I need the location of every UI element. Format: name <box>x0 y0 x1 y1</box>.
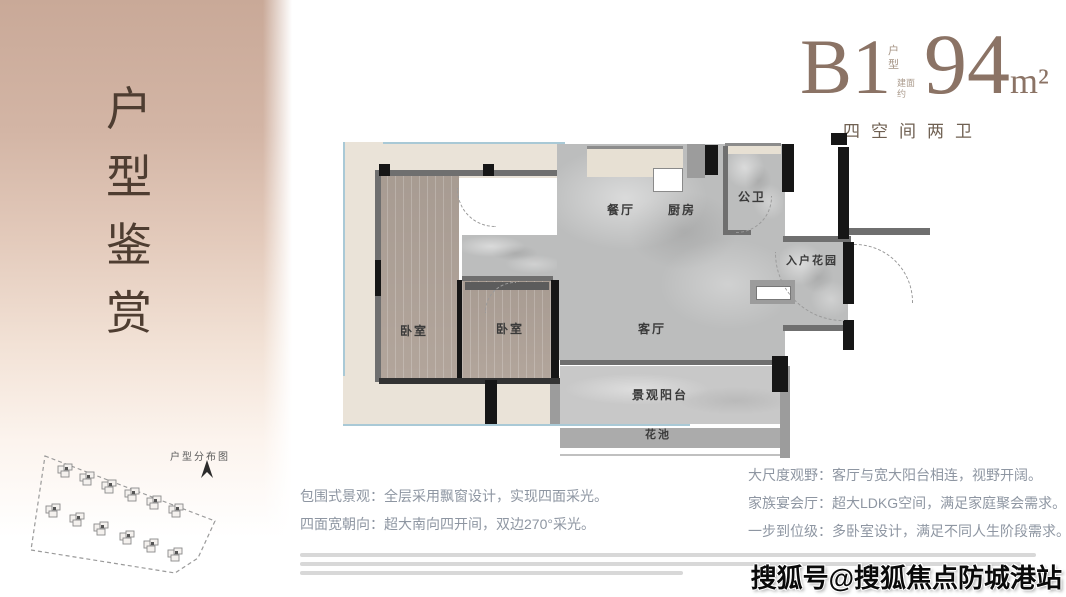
room-label-bedroom1: 卧室 <box>400 322 428 339</box>
wall-segment <box>551 280 559 380</box>
wall-segment <box>843 320 854 350</box>
area-unit: m² <box>1010 61 1049 101</box>
wall-segment <box>550 382 560 424</box>
title-char: 型 <box>97 144 161 212</box>
site-building <box>80 472 94 485</box>
wall-segment <box>379 164 390 176</box>
room-label-foyer: 入户花园 <box>786 252 838 268</box>
feature-line: 大尺度观野：客厅与宽大阳台相连，视野开阔。 <box>748 461 1066 489</box>
room-label-kitchen: 厨房 <box>668 201 696 218</box>
corridor-floor <box>462 235 558 280</box>
feature-list-left: 包围式景观：全层采用飘窗设计，实现四面采光。 四面宽朝向：超大南向四开间，双边2… <box>300 482 608 538</box>
feature-line: 包围式景观：全层采用飘窗设计，实现四面采光。 <box>300 482 608 510</box>
planter-outline <box>560 454 790 456</box>
page-title-vertical: 户 型 鉴 赏 <box>97 76 161 348</box>
site-building <box>168 548 182 561</box>
room-label-bedroom2: 卧室 <box>496 320 524 337</box>
feature-line: 四面宽朝向：超大南向四开间，双边270°采光。 <box>300 510 608 538</box>
wall-segment <box>462 276 553 281</box>
wall-segment <box>483 164 494 176</box>
site-boundary-dashed <box>31 456 215 573</box>
wall-segment <box>831 133 847 145</box>
wall-segment <box>560 360 780 365</box>
wall-segment <box>687 144 705 178</box>
site-building <box>94 522 108 535</box>
wall-segment <box>843 242 854 304</box>
wall-segment <box>379 170 557 176</box>
room-label-dining: 餐厅 <box>607 201 635 218</box>
kitchen-counter <box>653 168 683 192</box>
feature-line: 一步到位级：多卧室设计，满足不同人生阶段需求。 <box>748 517 1066 545</box>
feature-list-right: 大尺度观野：客厅与宽大阳台相连，视野开阔。 家族宴会厅：超大LDKG空间，满足家… <box>748 461 1066 545</box>
wall-segment <box>772 356 788 392</box>
room-label-bath: 公卫 <box>738 188 766 205</box>
site-building <box>144 539 158 552</box>
area-prefix-line: 约 <box>897 89 915 100</box>
wall-segment <box>379 378 560 384</box>
fineprint-line <box>300 553 1036 557</box>
area-number: 94 <box>924 16 1010 112</box>
title-char: 赏 <box>97 280 161 348</box>
site-building <box>169 504 183 517</box>
site-building <box>102 480 116 493</box>
door-arc <box>854 244 913 303</box>
room-label-planter: 花池 <box>645 426 671 442</box>
bedroom1-floor <box>379 174 459 380</box>
site-building <box>120 531 134 544</box>
site-building <box>125 488 139 501</box>
site-building <box>147 496 161 509</box>
wall-segment <box>705 145 718 175</box>
door-arc <box>457 188 496 227</box>
unit-tag-char: 户 <box>888 44 900 58</box>
area-prefix-line: 建面 <box>897 78 915 89</box>
site-map-label: 户型分布图 <box>170 448 230 463</box>
title-char: 户 <box>97 76 161 144</box>
unit-tag-char: 型 <box>888 58 900 72</box>
wall-segment <box>457 280 462 380</box>
sohu-watermark: 搜狐号@搜狐焦点防城港站 <box>751 558 1062 595</box>
wall-segment <box>485 380 497 424</box>
wall-segment <box>838 228 930 235</box>
site-building <box>70 513 84 526</box>
feature-line: 家族宴会厅：超大LDKG空间，满足家庭聚会需求。 <box>748 489 1066 517</box>
unit-code: B1 <box>800 22 891 112</box>
fineprint-line <box>300 571 683 575</box>
wall-segment <box>375 260 381 296</box>
site-building <box>46 504 60 517</box>
room-label-balcony: 景观阳台 <box>632 386 688 403</box>
wall-segment <box>783 325 843 331</box>
bath-window <box>725 143 781 154</box>
title-char: 鉴 <box>97 212 161 280</box>
planter-strip <box>560 428 782 448</box>
unit-code-tag: 户 型 <box>888 44 900 72</box>
floorplan: 餐厅 厨房 公卫 入户花园 卧室 卧室 客厅 景观阳台 花池 <box>335 130 935 465</box>
wall-segment <box>782 144 794 192</box>
wall-segment <box>838 147 849 239</box>
floorplan-poster: { "sidebar": { "title_chars": ["户", "型",… <box>0 0 1066 597</box>
room-label-living: 客厅 <box>638 320 666 337</box>
site-building <box>58 464 72 477</box>
area-value: 94m² <box>924 14 1049 131</box>
wall-segment <box>723 146 728 234</box>
area-prefix: 建面 约 <box>897 78 915 100</box>
